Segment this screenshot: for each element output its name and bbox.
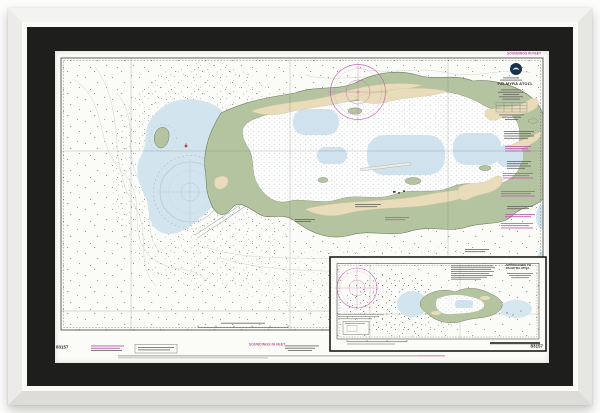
soundings-note-bottom-text: SOUNDINGS IN FEET <box>249 343 286 347</box>
chart-paper: SOUNDINGS IN FEET PALMYRA ATOLL 83157 SO… <box>55 51 549 363</box>
noaa-logo-icon <box>510 63 522 75</box>
inset-shallows-east <box>500 300 532 318</box>
chart-graphic <box>55 51 549 363</box>
chart-number-left: 83157 <box>56 345 69 350</box>
soundings-note-top-text: SOUNDINGS IN FEET <box>507 52 541 56</box>
soundings-note-top: SOUNDINGS IN FEET <box>499 52 541 55</box>
inset-map <box>330 257 546 351</box>
inset-title-line2: PALMYRA ATOLL <box>505 267 530 270</box>
framed-chart-photo: SOUNDINGS IN FEET PALMYRA ATOLL 83157 SO… <box>0 0 600 413</box>
soundings-note-bottom: SOUNDINGS IN FEET <box>238 343 297 347</box>
chart-number-right: 83157 <box>513 344 543 349</box>
chart-title: PALMYRA ATOLL <box>498 82 525 86</box>
inset-title-line1: APPROACHES TO <box>505 264 530 267</box>
